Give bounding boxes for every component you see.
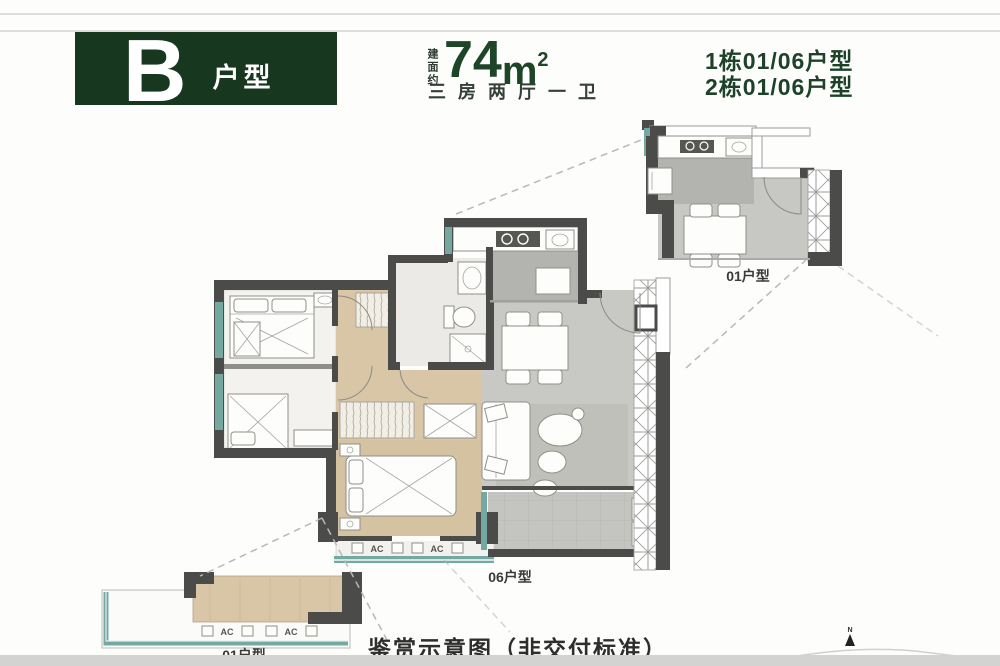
- hall-closet: [340, 402, 476, 438]
- sofa: [482, 402, 530, 480]
- ac-label-3: AC: [221, 627, 234, 637]
- north-arrow-icon: N: [845, 627, 855, 646]
- ac-label-1: AC: [371, 544, 384, 554]
- floorplan-drawing: AC AC 06户型: [0, 0, 1000, 666]
- inset-top-label: 01户型: [726, 268, 770, 284]
- bottom-edge-band: [0, 655, 1000, 666]
- inset-column-strip: [808, 170, 830, 262]
- structural-column-strip: [634, 278, 670, 570]
- bedroom2-wardrobe: [356, 293, 390, 327]
- inset-bottom-left: AC AC 01户型: [102, 572, 362, 663]
- main-floorplan: AC AC 06户型: [214, 218, 670, 585]
- floorplan-page: B 户型 建面约 74 m2 三房两厅一卫 1栋01/06户型 2栋01/06户…: [0, 0, 1000, 666]
- bedroom2-bed: [230, 296, 314, 358]
- north-label: N: [847, 627, 852, 634]
- inset-top-right: 01户型: [642, 120, 842, 284]
- main-unit-label: 06户型: [488, 569, 532, 585]
- ac-label-4: AC: [285, 627, 298, 637]
- ac-label-2: AC: [431, 544, 444, 554]
